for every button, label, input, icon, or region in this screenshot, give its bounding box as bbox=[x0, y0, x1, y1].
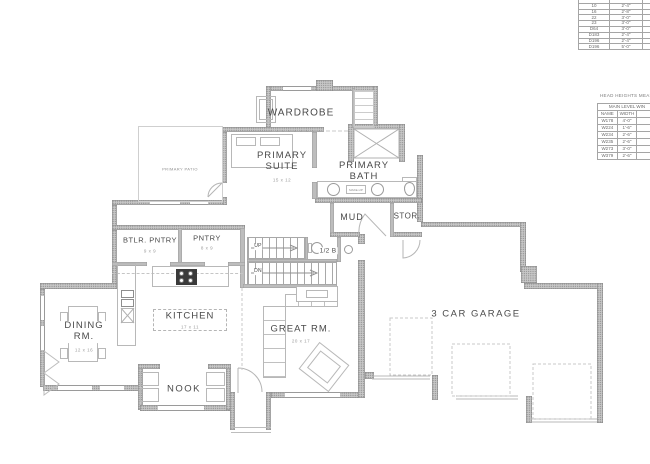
window bbox=[285, 392, 340, 398]
car-spot bbox=[452, 344, 510, 396]
burner bbox=[179, 278, 184, 283]
room-dim-primary-suite: 15 x 12 bbox=[273, 177, 291, 182]
wall bbox=[597, 283, 603, 423]
room-label-great-room: GREAT RM. bbox=[271, 325, 332, 336]
wall bbox=[365, 372, 374, 379]
room-label-primary-suite: PRIMARY SUITE bbox=[249, 151, 315, 173]
primary-patio-outline bbox=[138, 126, 223, 202]
head-heights-title: HEAD HEIGHTS MEASUR bbox=[600, 93, 650, 98]
entry-door-arc bbox=[238, 368, 262, 393]
room-label-kitchen: KITCHEN bbox=[166, 312, 215, 323]
car-spot bbox=[533, 364, 591, 419]
window bbox=[40, 326, 45, 350]
porch-step bbox=[231, 432, 271, 433]
window bbox=[58, 385, 92, 391]
wall bbox=[526, 396, 532, 423]
burner bbox=[179, 271, 184, 276]
wall bbox=[112, 205, 117, 227]
window bbox=[40, 296, 45, 320]
room-label-pantry: PNTRY bbox=[193, 235, 221, 244]
wall bbox=[330, 203, 334, 233]
burner bbox=[188, 271, 193, 276]
floor-plan-canvas: 102'-4" 162'-8" 223'-0" 233'-0" D643'-0"… bbox=[0, 0, 650, 464]
wall bbox=[421, 222, 525, 227]
wall bbox=[337, 237, 341, 262]
wall bbox=[316, 80, 333, 91]
sofa-section-vertical bbox=[263, 306, 286, 378]
wall bbox=[399, 124, 405, 162]
window bbox=[158, 405, 204, 411]
wall bbox=[358, 260, 365, 398]
porch-step bbox=[231, 427, 271, 428]
sink bbox=[371, 183, 384, 196]
room-label-primary-bath: PRIMARY BATH bbox=[333, 161, 395, 183]
room-label-primary-patio: PRIMARY PATIO bbox=[162, 168, 198, 173]
room-label-mud: MUD bbox=[340, 212, 364, 222]
room-dim-dining: 12 x 16 bbox=[75, 347, 93, 352]
room-dim-great-room: 20 x 17 bbox=[292, 338, 310, 343]
wall-oven bbox=[121, 290, 134, 298]
room-label-half-bath: 1/2 B bbox=[319, 247, 338, 254]
wall bbox=[348, 124, 354, 162]
stairs-up-label: UP bbox=[254, 244, 262, 250]
window-row: W234 bbox=[598, 132, 618, 139]
wall bbox=[208, 364, 231, 369]
wall bbox=[222, 127, 324, 132]
window-row: W224 bbox=[598, 125, 618, 132]
window-row: W379 bbox=[598, 153, 618, 160]
wall bbox=[524, 283, 602, 289]
nook-seat bbox=[140, 372, 159, 386]
wall bbox=[178, 228, 182, 265]
bed-pillow bbox=[260, 137, 280, 146]
makeup-counter: MAKE-UP bbox=[346, 185, 366, 194]
wall bbox=[40, 283, 117, 289]
nook-seat bbox=[206, 372, 225, 386]
wall bbox=[138, 364, 160, 369]
wall-oven bbox=[121, 299, 134, 307]
dining-chair bbox=[98, 348, 106, 359]
wall bbox=[240, 228, 245, 288]
window-row: W273 bbox=[598, 146, 618, 153]
wall bbox=[432, 375, 438, 400]
wall bbox=[521, 266, 537, 283]
schedule-cell: D196 bbox=[579, 44, 610, 50]
shower-x-icon bbox=[354, 129, 399, 158]
sink bbox=[327, 183, 340, 196]
closet-shelves bbox=[354, 90, 374, 128]
window bbox=[100, 385, 124, 391]
window-schedule-table: MAIN LEVEL WIN NAME WIDTH W1784'-0" W224… bbox=[597, 103, 650, 160]
burner bbox=[188, 278, 193, 283]
room-label-dining: DINING RM. bbox=[58, 321, 110, 343]
storage-door-arc bbox=[403, 240, 420, 258]
room-label-wardrobe: WARDROBE bbox=[268, 107, 335, 119]
cabinet-x-box bbox=[121, 308, 134, 323]
wall bbox=[230, 392, 235, 430]
window-row: W178 bbox=[598, 118, 618, 125]
room-label-butlers-pantry: BTLR. PNTRY bbox=[123, 237, 177, 246]
room-label-nook: NOOK bbox=[167, 385, 201, 396]
window-table-header: MAIN LEVEL WIN bbox=[598, 104, 650, 111]
room-dim-butlers-pantry: 9 x 9 bbox=[144, 248, 156, 253]
sink bbox=[344, 245, 353, 254]
car-spot bbox=[390, 318, 432, 375]
nook-seat bbox=[140, 388, 159, 402]
wall bbox=[520, 222, 526, 272]
stairs-down-label: DN bbox=[254, 269, 262, 275]
garage-doors bbox=[372, 376, 597, 422]
wall bbox=[330, 232, 360, 237]
room-dim-pantry: 8 x 9 bbox=[201, 245, 213, 250]
room-dim-kitchen: 17 x 11 bbox=[181, 324, 199, 329]
bed-pillow bbox=[236, 137, 256, 146]
wall bbox=[390, 232, 422, 237]
room-label-garage: 3 CAR GARAGE bbox=[431, 310, 520, 321]
window bbox=[283, 86, 311, 91]
dining-chair bbox=[60, 348, 68, 359]
room-label-stor: STOR. bbox=[394, 211, 421, 220]
fireplace-inner bbox=[306, 290, 328, 298]
window-row: W235 bbox=[598, 139, 618, 146]
nook-seat bbox=[206, 388, 225, 402]
shower bbox=[354, 129, 399, 158]
door-schedule-table: 102'-4" 162'-8" 223'-0" 233'-0" D643'-0"… bbox=[578, 0, 650, 50]
